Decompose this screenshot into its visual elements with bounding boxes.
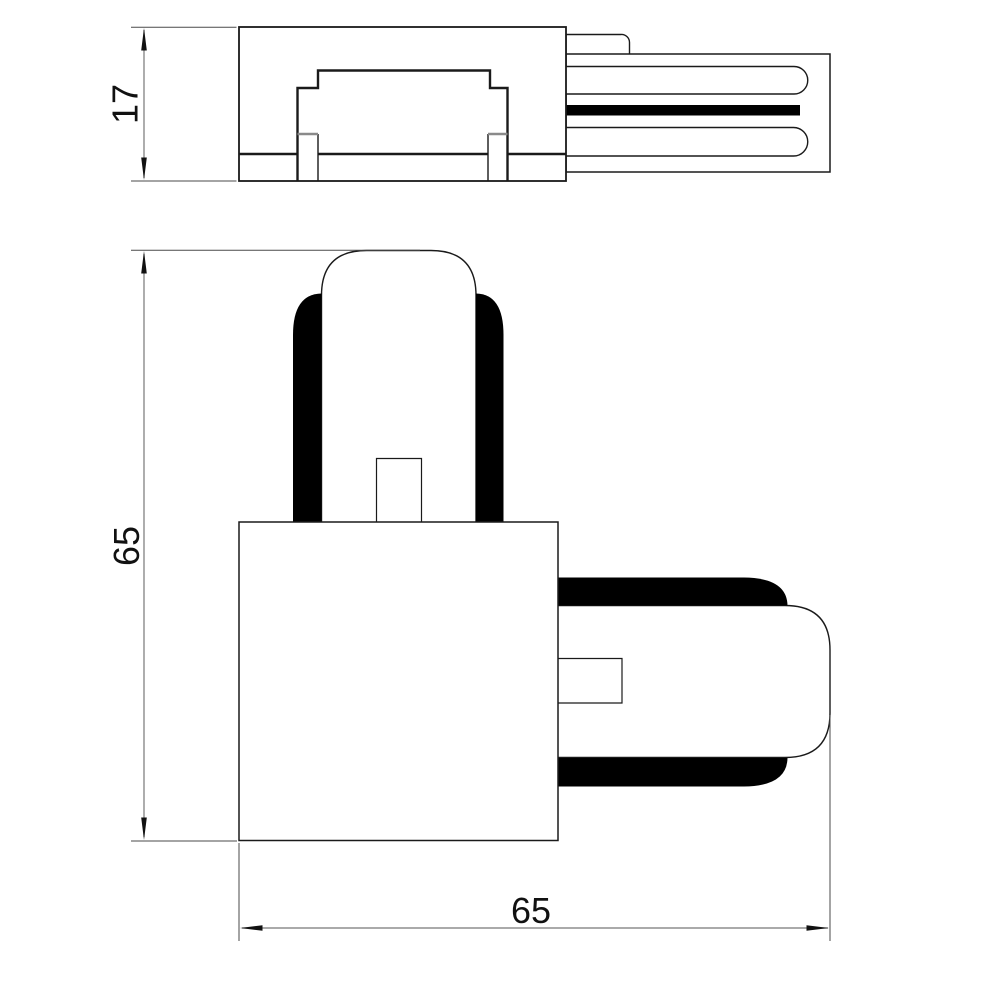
front-view-horizontal-prong-tab bbox=[558, 659, 622, 704]
arrowhead-up bbox=[141, 251, 147, 274]
arrowhead-right bbox=[807, 925, 830, 931]
side-view-latch-tab bbox=[566, 34, 630, 54]
dimension-label-65-horizontal: 65 bbox=[511, 890, 551, 931]
front-view-right-grip-band bbox=[476, 294, 504, 523]
front-view-bottom-grip-band bbox=[558, 758, 788, 787]
side-view-lower-contact-slot bbox=[566, 128, 808, 157]
front-view-corner-body bbox=[239, 522, 558, 841]
front-view-left-grip-band bbox=[293, 294, 322, 523]
technical-drawing-page: 17 65 65 bbox=[0, 0, 1000, 1000]
side-view-conductor-bar bbox=[566, 105, 800, 116]
arrowhead-down bbox=[141, 818, 147, 841]
arrowhead-up bbox=[141, 28, 147, 51]
front-view-top-grip-band bbox=[558, 578, 788, 606]
connector-technical-drawing: 17 65 65 bbox=[0, 0, 1000, 1000]
dimension-side-height: 17 bbox=[105, 27, 237, 181]
dimension-label-65-vertical: 65 bbox=[106, 526, 147, 566]
front-view-vertical-prong-tab bbox=[377, 459, 422, 523]
side-view bbox=[239, 27, 830, 181]
side-view-upper-contact-slot bbox=[566, 67, 808, 95]
front-view bbox=[239, 251, 830, 841]
dimension-label-17: 17 bbox=[105, 84, 146, 124]
side-view-body bbox=[239, 27, 566, 181]
arrowhead-left bbox=[240, 925, 263, 931]
arrowhead-down bbox=[141, 158, 147, 181]
